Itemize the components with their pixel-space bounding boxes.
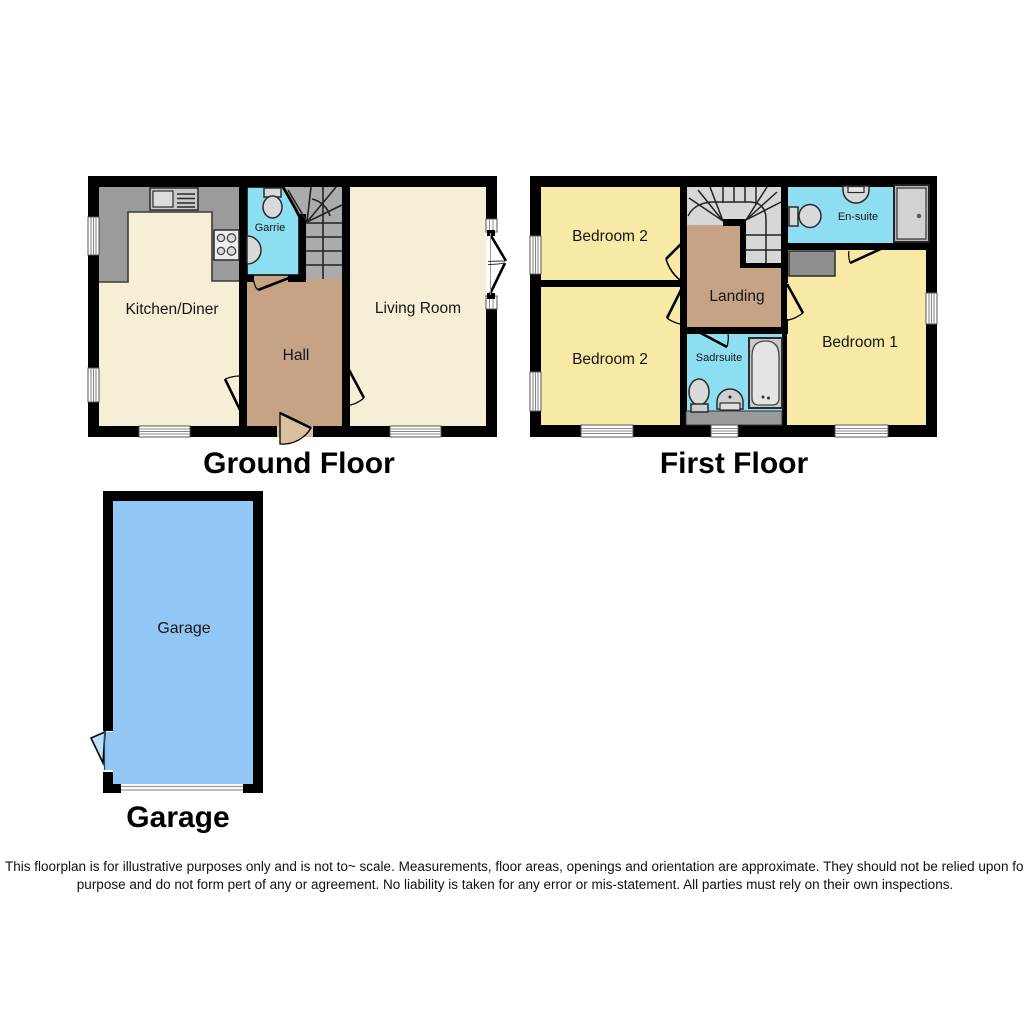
svg-text:Garage: Garage: [157, 620, 210, 637]
svg-text:Hall: Hall: [283, 347, 310, 364]
svg-text:Bedroom 2: Bedroom 2: [572, 351, 648, 368]
svg-text:Sadrsuite: Sadrsuite: [696, 352, 742, 364]
svg-text:Landing: Landing: [709, 288, 764, 305]
svg-text:Garrie: Garrie: [255, 222, 286, 234]
svg-text:This floorplan is for illustra: This floorplan is for illustrative purpo…: [5, 859, 1024, 874]
svg-text:Ground Floor: Ground Floor: [203, 447, 395, 480]
svg-text:Living Room: Living Room: [375, 300, 461, 317]
svg-text:En-suite: En-suite: [838, 211, 878, 223]
svg-text:First Floor: First Floor: [660, 447, 809, 480]
svg-text:Bedroom 2: Bedroom 2: [572, 228, 648, 245]
svg-text:Bedroom 1: Bedroom 1: [822, 334, 898, 351]
svg-text:Kitchen/Diner: Kitchen/Diner: [125, 301, 218, 318]
svg-text:purpose and do not form pert o: purpose and do not form pert of any or a…: [77, 877, 953, 892]
svg-text:Garage: Garage: [126, 801, 229, 834]
